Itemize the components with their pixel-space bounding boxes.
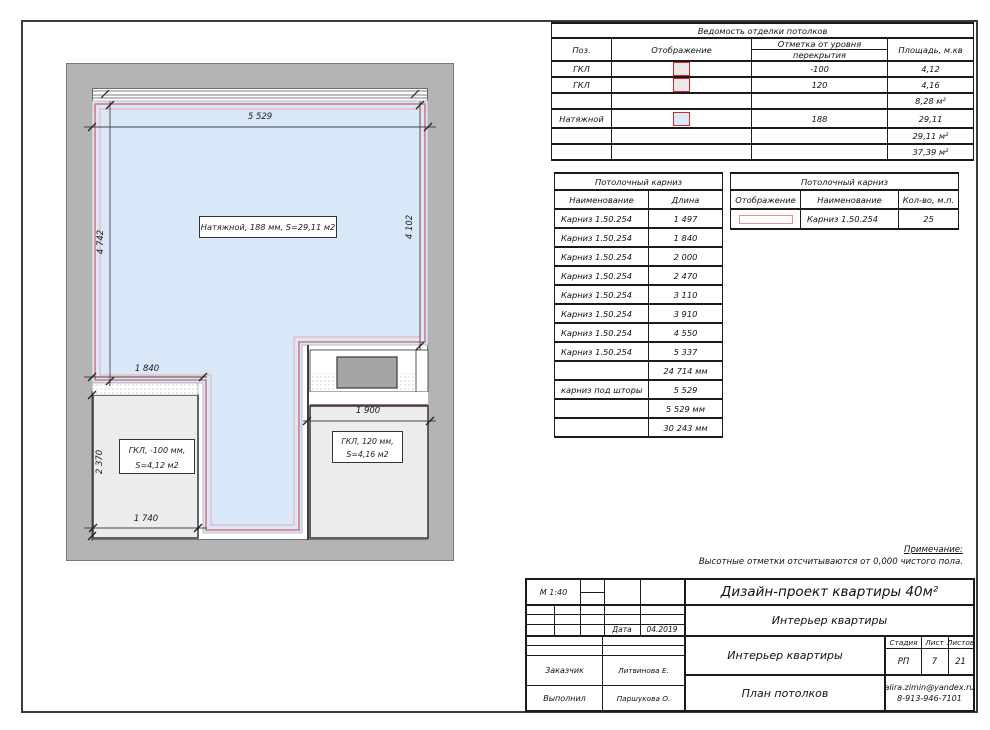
- project-subtitle: Интерьер квартиры: [686, 606, 973, 635]
- table-row: 8,28 м²: [552, 93, 974, 109]
- table-row: ГКЛ-1004,12: [552, 61, 974, 77]
- stage-label: Стадия: [886, 637, 921, 648]
- table-row: Карниз 1.50.2542 000: [555, 247, 723, 266]
- author-value: Паршукова О.: [603, 686, 684, 710]
- table-row: 29,11 м²: [552, 128, 974, 144]
- cornice-table: Потолочный карниз НаименованиеДлина Карн…: [554, 172, 723, 438]
- project-title: Дизайн-проект квартиры 40м²: [686, 580, 973, 604]
- table-row: Карниз 1.50.2545 337: [555, 342, 723, 361]
- dim-top: 5 529: [220, 112, 300, 122]
- client-value: Литвинова Е.: [603, 656, 684, 685]
- dim-bottom-right: 1 900: [338, 406, 398, 416]
- dim-bottom-left-vertical: 2 370: [95, 437, 105, 487]
- date-label: Дата: [604, 624, 640, 635]
- gkl-minus100-label: ГКЛ, -100 мм, S=4,12 м2: [119, 439, 195, 474]
- table-row: Карниз 1.50.2541 497: [555, 209, 723, 228]
- col-header: Отображение: [731, 190, 801, 209]
- date-value: 04.2019: [640, 624, 684, 635]
- ceiling-plan-sheet: { "note": { "title": "Примечание:", "tex…: [0, 0, 990, 730]
- cornice-summary-title: Потолочный карниз: [731, 173, 959, 190]
- table-row: Карниз 1.50.2543 110: [555, 285, 723, 304]
- finish-swatch-gkl: [673, 78, 690, 92]
- note: Примечание: Высотные отметки отсчитывают…: [699, 545, 963, 567]
- scale-cell: М 1:40: [527, 580, 580, 604]
- contact-cell: alira.zimin@yandex.ru 8-913-946-7101: [886, 676, 973, 710]
- sheets-total-value: 21: [948, 649, 973, 674]
- sheet-title: План потолков: [686, 676, 884, 710]
- gkl-120-label: ГКЛ, 120 мм, S=4,16 м2: [332, 431, 403, 463]
- dim-middle: 1 840: [117, 364, 177, 374]
- table-row: 24 714 мм: [555, 361, 723, 380]
- table-row: 30 243 мм: [555, 418, 723, 437]
- cornice-swatch: [739, 215, 793, 224]
- sheet-number-label: Лист: [921, 637, 948, 648]
- col-header: Длина: [649, 190, 723, 209]
- col-header: Наименование: [555, 190, 649, 209]
- stage-value: РП: [886, 649, 921, 674]
- client-label: Заказчик: [527, 656, 602, 685]
- stretch-ceiling-label: Натяжной, 188 мм, S=29,11 м2: [199, 216, 337, 238]
- table-row: Карниз 1.50.2541 840: [555, 228, 723, 247]
- sheets-total-label: Листов: [948, 637, 973, 648]
- dim-left: 4 742: [96, 217, 106, 267]
- cornice-table-title: Потолочный карниз: [555, 173, 723, 190]
- finish-table: Ведомость отделки потолков Поз. Отображе…: [551, 22, 974, 161]
- table-row: карниз под шторы5 529: [555, 380, 723, 399]
- dim-bottom-left: 1 740: [116, 514, 176, 524]
- table-row: Карниз 1.50.25425: [731, 209, 959, 229]
- note-title: Примечание:: [699, 545, 963, 555]
- finish-table-title: Ведомость отделки потолков: [552, 23, 974, 38]
- title-block: М 1:40 Дата 04.2019 Дизайн-проект кварти…: [525, 578, 975, 712]
- section-title: Интерьер квартиры: [686, 637, 884, 674]
- table-row: Карниз 1.50.2542 470: [555, 266, 723, 285]
- table-row: Карниз 1.50.2544 550: [555, 323, 723, 342]
- col-header: Поз.: [552, 38, 612, 61]
- cornice-summary-table: Потолочный карниз ОтображениеНаименовани…: [730, 172, 959, 230]
- table-row: ГКЛ1204,16: [552, 77, 974, 93]
- table-row: 5 529 мм: [555, 399, 723, 418]
- table-row: Карниз 1.50.2543 910: [555, 304, 723, 323]
- col-header: Наименование: [801, 190, 899, 209]
- note-text: Высотные отметки отсчитываются от 0,000 …: [699, 557, 963, 567]
- contact-phone: 8-913-946-7101: [897, 693, 962, 704]
- col-header: Площадь, м.кв: [888, 38, 974, 61]
- finish-swatch-gkl: [673, 62, 690, 76]
- col-header: Кол-во, м.п.: [899, 190, 959, 209]
- contact-email: alira.zimin@yandex.ru: [885, 682, 975, 693]
- dim-right: 4 102: [405, 202, 415, 252]
- table-row: 37,39 м²: [552, 144, 974, 160]
- author-label: Выполнил: [527, 686, 602, 710]
- col-header: Отображение: [612, 38, 752, 61]
- finish-swatch-stretch: [673, 112, 690, 126]
- sheet-number-value: 7: [921, 649, 948, 674]
- table-row: Натяжной18829,11: [552, 109, 974, 128]
- col-header: Отметка от уровня перекрытия: [752, 38, 888, 61]
